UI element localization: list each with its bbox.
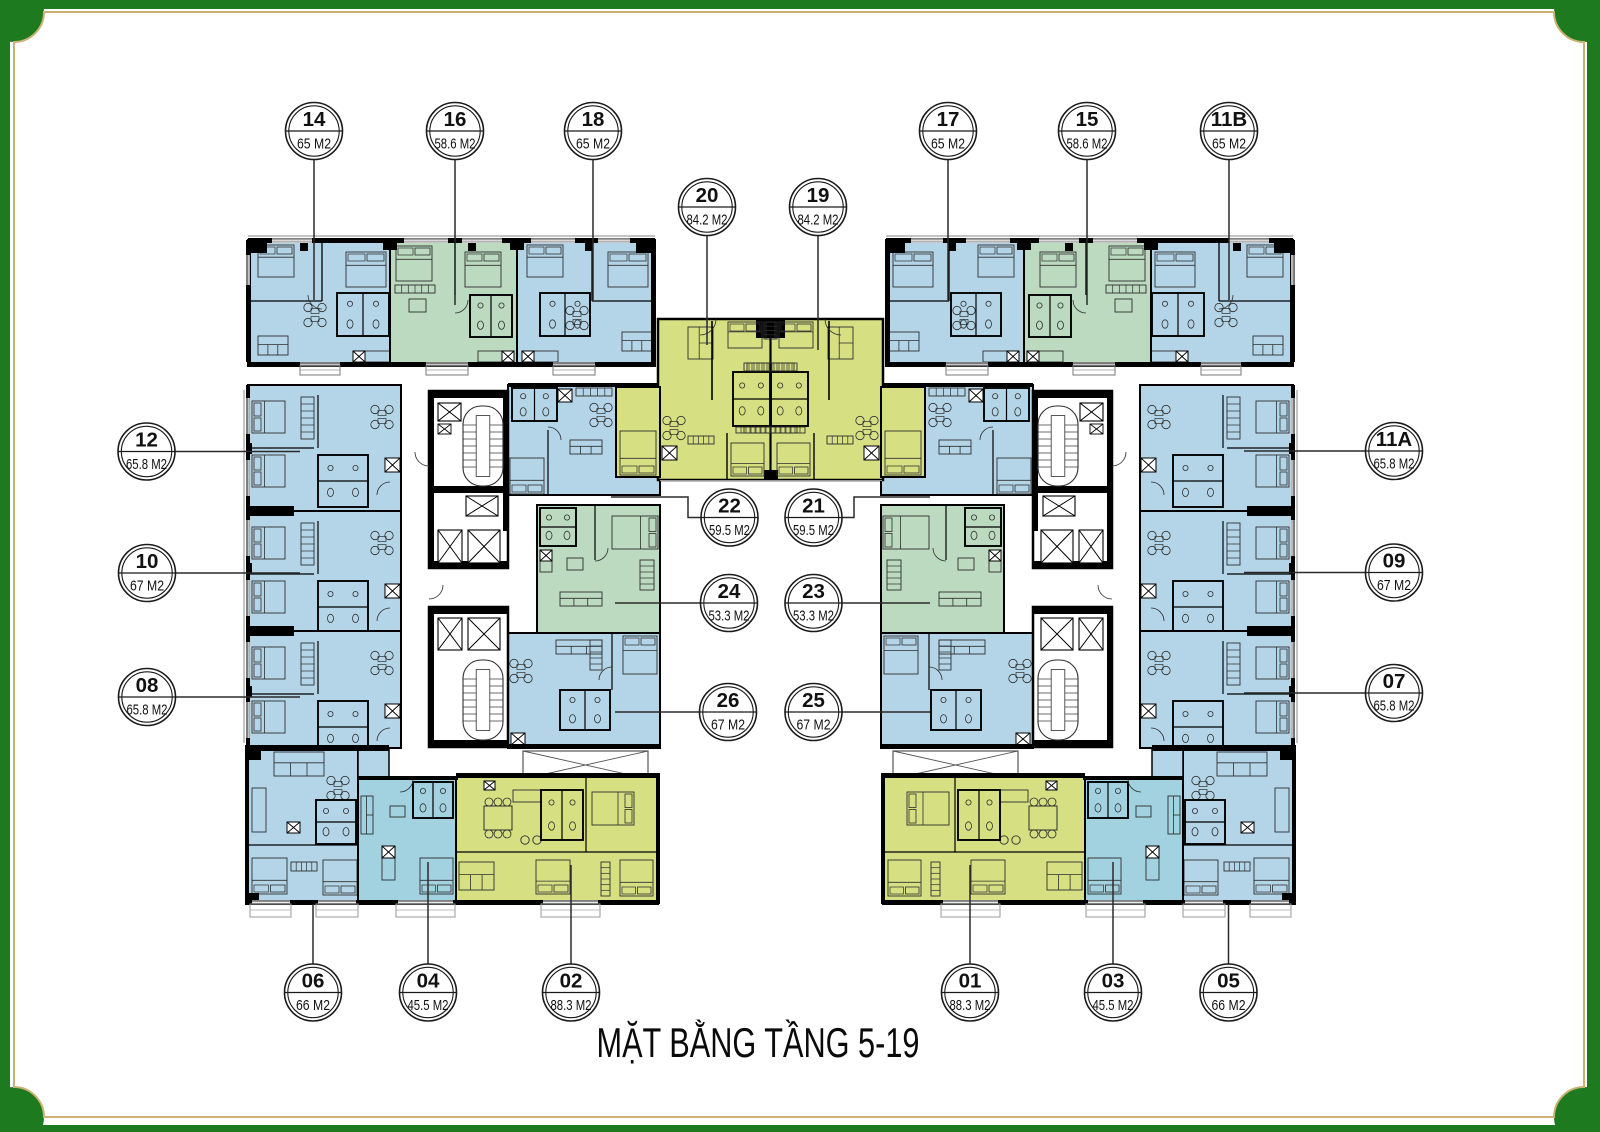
svg-text:59.5 M2: 59.5 M2 xyxy=(793,522,834,539)
svg-text:65.8 M2: 65.8 M2 xyxy=(1374,456,1415,473)
svg-text:18: 18 xyxy=(582,108,605,131)
svg-text:24: 24 xyxy=(718,580,741,603)
svg-text:06: 06 xyxy=(302,970,325,993)
svg-text:66 M2: 66 M2 xyxy=(1212,997,1246,1014)
svg-text:67 M2: 67 M2 xyxy=(797,717,831,734)
svg-text:14: 14 xyxy=(303,108,326,131)
svg-text:05: 05 xyxy=(1217,970,1240,993)
svg-text:67 M2: 67 M2 xyxy=(1377,577,1411,594)
svg-text:65 M2: 65 M2 xyxy=(1212,136,1246,153)
svg-text:20: 20 xyxy=(696,184,719,207)
svg-text:17: 17 xyxy=(937,108,960,131)
svg-text:11B: 11B xyxy=(1211,108,1247,131)
svg-text:25: 25 xyxy=(802,689,825,712)
svg-text:65.8 M2: 65.8 M2 xyxy=(1374,698,1415,715)
svg-text:88.3 M2: 88.3 M2 xyxy=(950,997,991,1014)
svg-text:19: 19 xyxy=(807,184,830,207)
svg-text:58.6 M2: 58.6 M2 xyxy=(1067,136,1108,153)
svg-text:84.2 M2: 84.2 M2 xyxy=(687,212,728,229)
svg-text:59.5 M2: 59.5 M2 xyxy=(709,522,750,539)
svg-text:66 M2: 66 M2 xyxy=(296,997,330,1014)
svg-text:16: 16 xyxy=(444,108,467,131)
svg-text:45.5 M2: 45.5 M2 xyxy=(1093,997,1134,1014)
svg-text:MẶT BẰNG TẦNG 5-19: MẶT BẰNG TẦNG 5-19 xyxy=(597,1019,920,1066)
svg-text:11A: 11A xyxy=(1376,428,1413,451)
svg-text:01: 01 xyxy=(959,970,982,993)
svg-text:58.6 M2: 58.6 M2 xyxy=(435,136,476,153)
svg-text:09: 09 xyxy=(1383,550,1406,573)
svg-text:53.3 M2: 53.3 M2 xyxy=(793,608,834,625)
svg-text:08: 08 xyxy=(136,674,159,697)
svg-text:65 M2: 65 M2 xyxy=(931,136,965,153)
svg-text:10: 10 xyxy=(136,550,159,573)
svg-text:03: 03 xyxy=(1102,970,1125,993)
svg-text:04: 04 xyxy=(417,970,440,993)
svg-text:65 M2: 65 M2 xyxy=(297,136,331,153)
svg-text:65.8 M2: 65.8 M2 xyxy=(126,456,167,473)
svg-text:67 M2: 67 M2 xyxy=(130,578,164,595)
svg-text:07: 07 xyxy=(1383,670,1406,693)
svg-text:88.3 M2: 88.3 M2 xyxy=(551,997,592,1014)
svg-text:45.5 M2: 45.5 M2 xyxy=(408,997,449,1014)
svg-text:65 M2: 65 M2 xyxy=(576,136,610,153)
svg-text:02: 02 xyxy=(560,970,583,993)
svg-text:53.3 M2: 53.3 M2 xyxy=(709,608,750,625)
svg-text:67 M2: 67 M2 xyxy=(711,717,745,734)
svg-text:23: 23 xyxy=(802,580,825,603)
svg-text:15: 15 xyxy=(1076,108,1099,131)
svg-text:22: 22 xyxy=(718,495,741,518)
svg-text:84.2 M2: 84.2 M2 xyxy=(798,212,839,229)
svg-text:21: 21 xyxy=(802,495,825,518)
svg-text:65.8 M2: 65.8 M2 xyxy=(127,702,168,719)
svg-text:12: 12 xyxy=(135,429,158,452)
svg-text:26: 26 xyxy=(717,689,740,712)
